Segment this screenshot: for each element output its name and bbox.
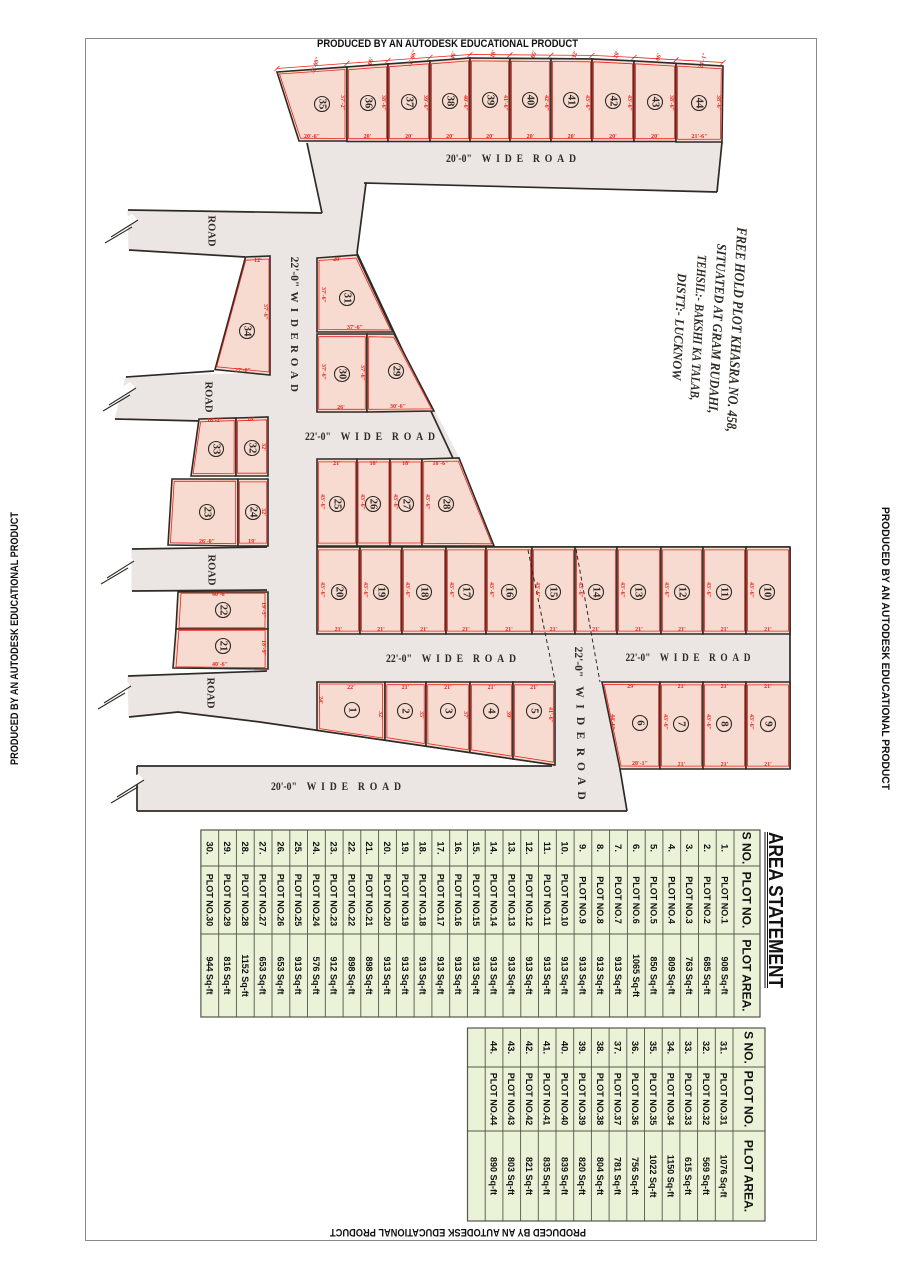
svg-text:569 Sq-ft: 569 Sq-ft: [701, 1157, 711, 1195]
svg-text:18: 18: [419, 587, 431, 598]
svg-text:43'-6": 43'-6": [748, 714, 754, 730]
svg-text:17.: 17.: [434, 841, 445, 854]
svg-text:26': 26': [337, 405, 345, 411]
svg-text:38'-6": 38'-6": [668, 95, 674, 111]
svg-text:763 Sq-ft: 763 Sq-ft: [684, 956, 694, 994]
svg-text:43'-6": 43'-6": [359, 494, 365, 510]
svg-text:42'-6": 42'-6": [543, 95, 549, 111]
svg-text:21': 21': [488, 685, 496, 691]
svg-text:20': 20': [333, 257, 341, 263]
svg-text:37'-6": 37'-6": [262, 304, 268, 320]
svg-text:PLOT NO.24: PLOT NO.24: [311, 874, 321, 927]
svg-text:ROAD: ROAD: [206, 555, 217, 586]
svg-text:15.: 15.: [470, 841, 481, 854]
svg-text:D: D: [288, 319, 300, 327]
svg-text:21'-6": 21'-6": [692, 134, 708, 140]
svg-text:PLOT NO.36: PLOT NO.36: [630, 1073, 640, 1126]
svg-text:821 Sq-ft: 821 Sq-ft: [524, 1157, 534, 1195]
svg-text:22'-0" W I D E R O: 22'-0" W I D E R O A D: [386, 653, 516, 665]
svg-text:18'-9": 18'-9": [260, 640, 266, 656]
svg-text:PLOT NO.4: PLOT NO.4: [666, 876, 676, 924]
svg-text:PLOT NO.13: PLOT NO.13: [506, 874, 516, 927]
svg-text:PLOT NO.27: PLOT NO.27: [258, 874, 268, 927]
svg-text:43'-6": 43'-6": [448, 582, 454, 598]
svg-text:913 Sq-ft: 913 Sq-ft: [489, 956, 499, 994]
svg-text:839 Sq-ft: 839 Sq-ft: [559, 1157, 569, 1195]
svg-text:22.: 22.: [345, 841, 356, 854]
svg-text:PLOT NO.8: PLOT NO.8: [595, 876, 605, 924]
svg-text:30: 30: [337, 369, 349, 380]
svg-text:908 Sq-ft: 908 Sq-ft: [720, 956, 730, 994]
svg-text:913 Sq-ft: 913 Sq-ft: [595, 956, 605, 994]
svg-text:39.: 39.: [576, 1041, 587, 1054]
svg-text:PLOT NO.2: PLOT NO.2: [702, 876, 712, 924]
svg-text:24': 24': [317, 696, 323, 704]
svg-text:D: D: [575, 791, 587, 799]
svg-text:PLOT NO.31: PLOT NO.31: [719, 1073, 729, 1126]
svg-text:21': 21': [333, 461, 341, 467]
svg-text:27: 27: [401, 499, 413, 510]
svg-text:PLOT NO.5: PLOT NO.5: [649, 876, 659, 924]
svg-text:20'-6": 20'-6": [304, 134, 320, 140]
svg-text:2: 2: [400, 708, 412, 713]
svg-text:PLOT NO.43: PLOT NO.43: [506, 1073, 516, 1126]
svg-text:PLOT NO.9: PLOT NO.9: [578, 876, 588, 924]
svg-text:PLOT NO.21: PLOT NO.21: [364, 874, 374, 927]
svg-text:913 Sq-ft: 913 Sq-ft: [453, 956, 463, 994]
svg-text:21': 21': [764, 762, 772, 768]
svg-text:PLOT NO.33: PLOT NO.33: [683, 1073, 693, 1126]
svg-text:36: 36: [363, 98, 375, 109]
svg-text:A: A: [288, 371, 300, 379]
svg-text:PLOT NO.1: PLOT NO.1: [720, 876, 730, 924]
svg-text:PLOT NO.3: PLOT NO.3: [684, 876, 694, 924]
svg-text:20': 20': [405, 134, 413, 140]
svg-text:913 Sq-ft: 913 Sq-ft: [382, 956, 392, 994]
svg-text:913 Sq-ft: 913 Sq-ft: [435, 956, 445, 994]
svg-text:37'-6": 37'-6": [320, 364, 326, 380]
svg-text:43.: 43.: [505, 1041, 516, 1054]
svg-text:PLOT NO.39: PLOT NO.39: [577, 1073, 587, 1126]
svg-text:32: 32: [247, 443, 259, 454]
svg-text:42.: 42.: [523, 1041, 534, 1054]
svg-text:913 Sq-ft: 913 Sq-ft: [418, 956, 428, 994]
svg-text:43'-6": 43'-6": [662, 714, 668, 730]
svg-text:41'-6": 41'-6": [502, 95, 508, 111]
svg-text:PLOT NO.11: PLOT NO.11: [542, 874, 552, 926]
svg-text:PLOT NO.41: PLOT NO.41: [542, 1073, 552, 1126]
svg-text:913 Sq-ft: 913 Sq-ft: [578, 956, 588, 994]
svg-text:PLOT NO.16: PLOT NO.16: [453, 874, 463, 927]
svg-text:PLOT AREA.: PLOT AREA.: [740, 939, 754, 1011]
svg-text:40'-6": 40'-6": [462, 95, 468, 111]
svg-text:26.: 26.: [274, 841, 285, 854]
svg-text:898 Sq-ft: 898 Sq-ft: [364, 956, 374, 994]
svg-text:653 Sq-ft: 653 Sq-ft: [258, 956, 268, 994]
svg-text:22': 22': [347, 685, 355, 691]
svg-text:12.: 12.: [523, 841, 534, 854]
svg-text:14.: 14.: [488, 841, 499, 854]
svg-text:35': 35': [418, 711, 424, 719]
svg-text:19'-3": 19'-3": [260, 602, 266, 618]
svg-text:913 Sq-ft: 913 Sq-ft: [293, 956, 303, 994]
svg-text:36.: 36.: [629, 1041, 640, 1054]
svg-text:PLOT NO.29: PLOT NO.29: [222, 874, 232, 927]
svg-text:D: D: [288, 384, 300, 392]
svg-text:21': 21': [420, 627, 428, 633]
svg-text:3: 3: [443, 708, 455, 714]
svg-text:18'-2": 18'-2": [207, 418, 223, 424]
svg-text:1152 Sq-ft: 1152 Sq-ft: [240, 954, 250, 997]
svg-text:PLOT NO.15: PLOT NO.15: [471, 874, 481, 927]
svg-text:21': 21': [721, 627, 729, 633]
svg-text:PLOT AREA.: PLOT AREA.: [742, 1140, 756, 1212]
svg-text:21': 21': [635, 627, 643, 633]
svg-text:43'-6": 43'-6": [584, 95, 590, 111]
svg-text:33: 33: [211, 444, 223, 455]
svg-text:20': 20': [446, 134, 454, 140]
svg-text:23: 23: [202, 507, 214, 518]
svg-text:576 Sq-ft: 576 Sq-ft: [311, 956, 321, 994]
svg-text:22'-0": 22'-0": [288, 257, 300, 288]
svg-text:44'-6": 44'-6": [609, 714, 615, 730]
svg-text:21': 21': [764, 627, 772, 633]
svg-text:7.: 7.: [612, 844, 623, 852]
svg-text:37'-6": 37'-6": [359, 365, 365, 381]
svg-text:21: 21: [218, 641, 230, 652]
svg-text:21': 21': [721, 762, 729, 768]
svg-text:14: 14: [591, 587, 603, 598]
svg-text:38'-6": 38'-6": [380, 95, 386, 111]
svg-text:16: 16: [504, 587, 516, 598]
svg-text:18': 18': [247, 417, 255, 423]
svg-text:20'-0" W I D E R O: 20'-0" W I D E R O A D: [446, 153, 576, 165]
svg-text:835 Sq-ft: 835 Sq-ft: [542, 1157, 552, 1195]
svg-text:40.: 40.: [558, 1041, 569, 1054]
svg-text:43'-6": 43'-6": [705, 582, 711, 598]
svg-text:S NO.: S NO.: [740, 832, 754, 865]
svg-text:21': 21': [377, 627, 385, 633]
svg-text:912 Sq-ft: 912 Sq-ft: [329, 956, 339, 994]
svg-text:PLOT NO.23: PLOT NO.23: [329, 874, 339, 927]
svg-text:20': 20': [568, 134, 576, 140]
svg-text:21': 21': [678, 762, 686, 768]
svg-text:PRODUCED BY AN AUTODESK EDUCAT: PRODUCED BY AN AUTODESK EDUCATIONAL PROD…: [317, 38, 578, 50]
svg-text:20.: 20.: [381, 841, 392, 854]
svg-text:913 Sq-ft: 913 Sq-ft: [471, 956, 481, 994]
svg-text:24.: 24.: [310, 841, 321, 854]
svg-text:41'-6": 41'-6": [547, 707, 553, 723]
svg-text:2.: 2.: [701, 844, 712, 852]
svg-text:R: R: [574, 748, 586, 757]
svg-text:1: 1: [347, 707, 359, 712]
svg-text:8.: 8.: [594, 844, 605, 852]
svg-text:18': 18': [402, 461, 410, 467]
svg-text:12: 12: [677, 587, 689, 598]
svg-text:28: 28: [441, 499, 453, 510]
svg-text:913 Sq-ft: 913 Sq-ft: [524, 956, 534, 994]
svg-text:3.: 3.: [683, 844, 694, 852]
svg-text:37.: 37.: [612, 1041, 623, 1054]
svg-text:6.: 6.: [630, 844, 641, 852]
svg-text:O: O: [288, 358, 300, 367]
svg-text:41.: 41.: [541, 1041, 552, 1054]
svg-text:1065 Sq-ft: 1065 Sq-ft: [631, 954, 641, 997]
svg-text:PLOT NO.40: PLOT NO.40: [559, 1073, 569, 1126]
svg-text:21': 21': [721, 684, 729, 690]
svg-text:10.: 10.: [559, 841, 570, 854]
svg-text:18.: 18.: [417, 841, 428, 854]
svg-text:38.: 38.: [594, 1041, 605, 1054]
svg-text:30'-6": 30'-6": [390, 404, 406, 410]
svg-text:PLOT NO.22: PLOT NO.22: [346, 874, 356, 927]
svg-text:913 Sq-ft: 913 Sq-ft: [613, 956, 623, 994]
svg-text:PLOT NO.38: PLOT NO.38: [595, 1073, 605, 1126]
svg-text:O: O: [574, 762, 586, 771]
svg-text:43'-6": 43'-6": [319, 582, 325, 598]
svg-text:43'-6": 43'-6": [619, 582, 625, 598]
svg-text:W: W: [573, 686, 585, 698]
svg-text:A: A: [575, 777, 587, 786]
svg-text:44.: 44.: [488, 1041, 499, 1054]
svg-text:7: 7: [676, 721, 688, 727]
svg-text:PLOT NO.20: PLOT NO.20: [382, 874, 392, 927]
svg-text:28.: 28.: [239, 841, 250, 854]
svg-text:17: 17: [461, 587, 473, 598]
svg-text:913 Sq-ft: 913 Sq-ft: [542, 956, 552, 994]
svg-text:43'-6": 43'-6": [705, 714, 711, 730]
svg-text:ROAD: ROAD: [205, 678, 216, 709]
svg-text:804 Sq-ft: 804 Sq-ft: [595, 1157, 605, 1195]
svg-text:850 Sq-ft: 850 Sq-ft: [649, 956, 659, 994]
svg-text:11.: 11.: [541, 842, 552, 855]
svg-text:21': 21': [505, 627, 513, 633]
svg-text:21': 21': [678, 684, 686, 690]
svg-text:PLOT NO.14: PLOT NO.14: [489, 874, 499, 927]
svg-text:PLOT NO.19: PLOT NO.19: [400, 874, 410, 927]
svg-text:653 Sq-ft: 653 Sq-ft: [275, 956, 285, 994]
svg-text:PLOT NO.6: PLOT NO.6: [631, 876, 641, 924]
svg-text:22: 22: [218, 605, 230, 616]
svg-text:913 Sq-ft: 913 Sq-ft: [506, 956, 516, 994]
svg-text:8: 8: [719, 721, 731, 727]
svg-text:PLOT NO.7: PLOT NO.7: [613, 876, 623, 924]
svg-text:43'-6": 43'-6": [392, 494, 398, 510]
svg-text:PLOT NO.30: PLOT NO.30: [204, 874, 214, 927]
svg-text:43'-6": 43'-6": [319, 494, 325, 510]
svg-text:913 Sq-ft: 913 Sq-ft: [560, 956, 570, 994]
svg-text:43'-6": 43'-6": [626, 95, 632, 111]
svg-text:D: D: [574, 717, 586, 725]
svg-text:944 Sq-ft: 944 Sq-ft: [204, 956, 214, 994]
svg-text:ROAD: ROAD: [206, 216, 217, 247]
svg-text:43'-6": 43'-6": [488, 582, 494, 598]
svg-text:890 Sq-ft: 890 Sq-ft: [489, 1157, 499, 1195]
svg-text:43'-6": 43'-6": [534, 582, 540, 598]
svg-text:21': 21': [462, 627, 470, 633]
svg-text:39': 39': [505, 711, 511, 719]
svg-text:ROAD: ROAD: [203, 382, 214, 413]
svg-text:38'-6": 38'-6": [715, 95, 721, 111]
svg-text:40'-6": 40'-6": [212, 592, 228, 598]
svg-text:25: 25: [332, 499, 344, 510]
svg-text:32': 32': [377, 711, 383, 719]
svg-text:20': 20': [486, 134, 494, 140]
svg-text:4: 4: [486, 708, 498, 714]
svg-text:24: 24: [248, 507, 260, 518]
svg-text:43'-6": 43'-6": [663, 582, 669, 598]
svg-text:29: 29: [391, 366, 403, 377]
svg-text:41: 41: [566, 95, 578, 106]
svg-text:26'-0": 26'-0": [199, 539, 215, 545]
svg-text:22'-0": 22'-0": [572, 647, 584, 678]
svg-text:31.: 31.: [718, 1041, 729, 1054]
svg-text:21': 21': [678, 627, 686, 633]
svg-text:18': 18': [370, 461, 378, 467]
svg-text:29.: 29.: [221, 841, 232, 854]
svg-text:43'-6": 43'-6": [404, 582, 410, 598]
svg-text:E: E: [288, 332, 300, 339]
svg-text:42: 42: [608, 96, 620, 107]
svg-text:43'-6": 43'-6": [424, 494, 430, 510]
svg-text:31: 31: [342, 293, 354, 304]
svg-text:20': 20': [364, 134, 372, 140]
svg-text:PLOT NO.28: PLOT NO.28: [240, 874, 250, 927]
svg-text:32': 32': [260, 443, 266, 451]
svg-text:10: 10: [762, 587, 774, 598]
svg-text:35.: 35.: [647, 1041, 658, 1054]
svg-text:11: 11: [719, 587, 731, 597]
svg-text:33.: 33.: [682, 1041, 693, 1054]
svg-text:39: 39: [485, 95, 497, 106]
svg-text:9.: 9.: [577, 844, 588, 852]
svg-text:PLOT NO.10: PLOT NO.10: [560, 874, 570, 927]
svg-text:W: W: [288, 292, 300, 303]
svg-text:34.: 34.: [665, 1041, 676, 1054]
svg-text:43'-6": 43'-6": [362, 582, 368, 598]
svg-text:12': 12': [254, 258, 262, 264]
svg-text:37'-2": 37'-2": [339, 95, 345, 111]
svg-text:PLOT NO.37: PLOT NO.37: [613, 1073, 623, 1126]
svg-text:29': 29': [627, 684, 635, 690]
svg-text:39'-6": 39'-6": [422, 95, 428, 111]
svg-text:816 Sq-ft: 816 Sq-ft: [222, 956, 232, 994]
svg-text:PLOT NO.32: PLOT NO.32: [701, 1073, 711, 1126]
svg-text:PRODUCED BY AN AUTODESK EDUCAT: PRODUCED BY AN AUTODESK EDUCATIONAL PROD…: [330, 1226, 586, 1238]
svg-text:781 Sq-ft: 781 Sq-ft: [613, 1157, 623, 1195]
svg-text:615 Sq-ft: 615 Sq-ft: [683, 1157, 693, 1195]
svg-text:35: 35: [317, 99, 329, 110]
svg-text:21.: 21.: [363, 841, 374, 854]
svg-text:16.: 16.: [452, 841, 463, 854]
svg-text:21': 21': [550, 627, 558, 633]
svg-text:5.: 5.: [648, 844, 659, 852]
svg-text:685 Sq-ft: 685 Sq-ft: [702, 956, 712, 994]
svg-text:PLOT NO.12: PLOT NO.12: [524, 874, 534, 927]
svg-text:20'-0" W I D E R O: 20'-0" W I D E R O A D: [271, 781, 401, 793]
svg-text:PLOT NO.42: PLOT NO.42: [524, 1073, 534, 1126]
svg-text:22'-0" W I D E R O: 22'-0" W I D E R O A D: [305, 431, 435, 443]
svg-text:PLOT NO.34: PLOT NO.34: [666, 1073, 676, 1126]
svg-text:PLOT NO.: PLOT NO.: [740, 872, 754, 929]
svg-text:820 Sq-ft: 820 Sq-ft: [577, 1157, 587, 1195]
svg-text:PLOT NO.26: PLOT NO.26: [275, 874, 285, 927]
svg-text:PRODUCED BY AN AUTODESK EDUCAT: PRODUCED BY AN AUTODESK EDUCATIONAL PROD…: [879, 507, 891, 790]
svg-text:40'-6": 40'-6": [212, 662, 228, 668]
svg-text:20': 20': [609, 134, 617, 140]
svg-text:38: 38: [445, 96, 457, 107]
svg-text:19': 19': [248, 539, 256, 545]
svg-text:PLOT NO.: PLOT NO.: [742, 1071, 756, 1128]
svg-text:20: 20: [334, 587, 346, 598]
svg-text:34: 34: [242, 326, 254, 337]
svg-text:13.: 13.: [505, 841, 516, 854]
svg-text:30.: 30.: [203, 841, 214, 854]
svg-text:21': 21': [592, 627, 600, 633]
svg-text:I: I: [573, 704, 585, 709]
svg-text:26: 26: [368, 499, 380, 510]
svg-text:R: R: [288, 345, 300, 354]
svg-text:25.: 25.: [292, 841, 303, 854]
svg-text:PLOT NO.18: PLOT NO.18: [418, 874, 428, 927]
svg-text:19.: 19.: [399, 841, 410, 854]
svg-text:37: 37: [404, 97, 416, 108]
svg-text:37'-6": 37'-6": [347, 325, 363, 331]
svg-text:21': 21': [530, 685, 538, 691]
svg-text:PRODUCED BY AN AUTODESK EDUCAT: PRODUCED BY AN AUTODESK EDUCATIONAL PROD…: [9, 512, 21, 765]
svg-text:PLOT NO.44: PLOT NO.44: [489, 1073, 499, 1126]
svg-text:21': 21': [764, 684, 772, 690]
svg-text:20': 20': [651, 134, 659, 140]
svg-text:18'-6": 18'-6": [433, 461, 449, 467]
svg-text:1076 Sq-ft: 1076 Sq-ft: [719, 1154, 729, 1197]
svg-text:E: E: [574, 732, 586, 740]
svg-text:43: 43: [650, 97, 662, 108]
svg-text:22'-0" W I D E R O: 22'-0" W I D E R O A D: [626, 652, 751, 664]
svg-text:803 Sq-ft: 803 Sq-ft: [506, 1157, 516, 1195]
svg-text:43'-6": 43'-6": [748, 582, 754, 598]
svg-text:32.: 32.: [700, 1041, 711, 1054]
svg-text:20': 20': [527, 134, 535, 140]
svg-text:PLOT NO.17: PLOT NO.17: [435, 874, 445, 927]
svg-text:43'-6": 43'-6": [577, 582, 583, 598]
svg-text:37'-6": 37'-6": [320, 287, 326, 303]
svg-text:I: I: [288, 308, 300, 312]
svg-text:5: 5: [529, 708, 541, 713]
svg-text:4.: 4.: [665, 844, 676, 852]
svg-text:23.: 23.: [328, 841, 339, 854]
svg-text:27'-0": 27'-0": [235, 368, 251, 374]
svg-text:21': 21': [335, 627, 343, 633]
svg-text:PLOT NO.35: PLOT NO.35: [648, 1073, 658, 1126]
svg-text:756 Sq-ft: 756 Sq-ft: [630, 1157, 640, 1195]
svg-text:15: 15: [548, 587, 560, 598]
svg-text:40: 40: [525, 95, 537, 106]
svg-text:809 Sq-ft: 809 Sq-ft: [666, 956, 676, 994]
svg-text:S NO.: S NO.: [742, 1031, 756, 1064]
svg-text:27.: 27.: [257, 841, 268, 854]
svg-text:6: 6: [635, 720, 647, 726]
svg-text:898 Sq-ft: 898 Sq-ft: [346, 956, 356, 994]
svg-text:44: 44: [694, 98, 706, 109]
svg-text:1.: 1.: [719, 844, 730, 852]
svg-text:PLOT NO.25: PLOT NO.25: [293, 874, 303, 927]
svg-text:37': 37': [462, 711, 468, 719]
svg-text:21': 21': [402, 685, 410, 691]
svg-text:19: 19: [376, 587, 388, 598]
svg-text:913 Sq-ft: 913 Sq-ft: [400, 956, 410, 994]
svg-text:1022 Sq-ft: 1022 Sq-ft: [648, 1154, 658, 1197]
